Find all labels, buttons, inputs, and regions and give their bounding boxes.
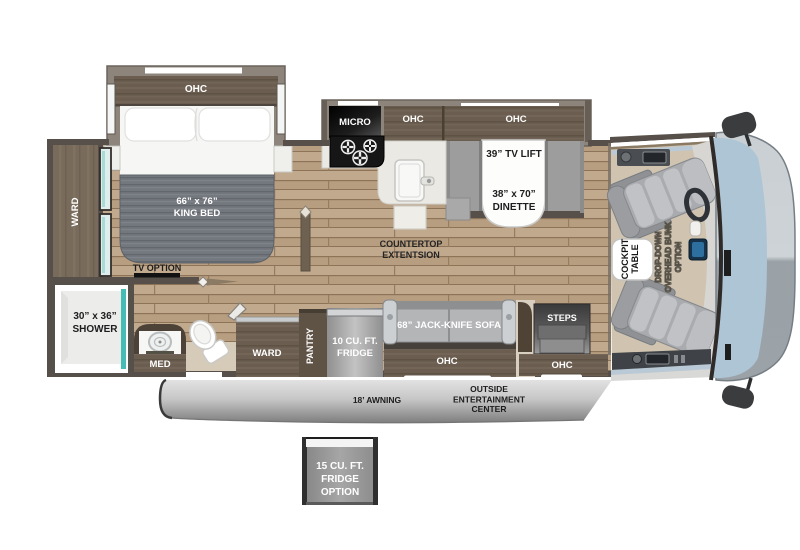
svg-text:OUTSIDE: OUTSIDE	[470, 384, 508, 394]
svg-text:MED: MED	[149, 359, 170, 370]
svg-text:30” x 36”: 30” x 36”	[73, 311, 116, 322]
svg-text:FRIDGE: FRIDGE	[337, 348, 373, 359]
svg-text:10 CU. FT.: 10 CU. FT.	[332, 336, 377, 347]
svg-text:CENTER: CENTER	[472, 404, 507, 414]
svg-text:KING BED: KING BED	[174, 208, 221, 219]
svg-text:STEPS: STEPS	[547, 313, 577, 323]
svg-text:DROP-DOWN: DROP-DOWN	[654, 231, 663, 282]
svg-text:OPTION: OPTION	[321, 487, 359, 498]
svg-text:SHOWER: SHOWER	[73, 324, 119, 335]
svg-text:OPTION: OPTION	[674, 241, 683, 272]
svg-text:38” x 70”: 38” x 70”	[492, 189, 535, 200]
svg-text:OHC: OHC	[505, 114, 526, 125]
svg-text:OHC: OHC	[436, 356, 457, 367]
svg-text:WARD: WARD	[70, 197, 81, 226]
svg-text:TABLE: TABLE	[630, 244, 640, 273]
svg-text:15 CU. FT.: 15 CU. FT.	[316, 461, 364, 472]
svg-text:TV OPTION: TV OPTION	[133, 263, 182, 273]
svg-text:OVERHEAD BUNK: OVERHEAD BUNK	[664, 221, 673, 292]
svg-text:COCKPIT: COCKPIT	[620, 238, 630, 279]
svg-text:DINETTE: DINETTE	[493, 202, 536, 213]
svg-text:OHC: OHC	[402, 114, 423, 125]
svg-text:OHC: OHC	[185, 84, 207, 95]
svg-text:66” x 76”: 66” x 76”	[176, 196, 217, 207]
svg-text:MICRO: MICRO	[339, 117, 371, 128]
svg-text:39” TV LIFT: 39” TV LIFT	[486, 149, 542, 160]
svg-text:18’ AWNING: 18’ AWNING	[353, 395, 402, 405]
svg-text:PANTRY: PANTRY	[305, 328, 315, 364]
svg-text:ENTERTAINMENT: ENTERTAINMENT	[453, 395, 526, 405]
svg-text:FRIDGE: FRIDGE	[321, 474, 359, 485]
svg-text:WARD: WARD	[252, 348, 281, 359]
svg-text:COUNTERTOP: COUNTERTOP	[380, 239, 443, 249]
svg-text:68” JACK-KNIFE SOFA: 68” JACK-KNIFE SOFA	[397, 320, 501, 331]
svg-text:OHC: OHC	[551, 360, 572, 371]
svg-text:EXTENTSION: EXTENTSION	[382, 250, 440, 260]
